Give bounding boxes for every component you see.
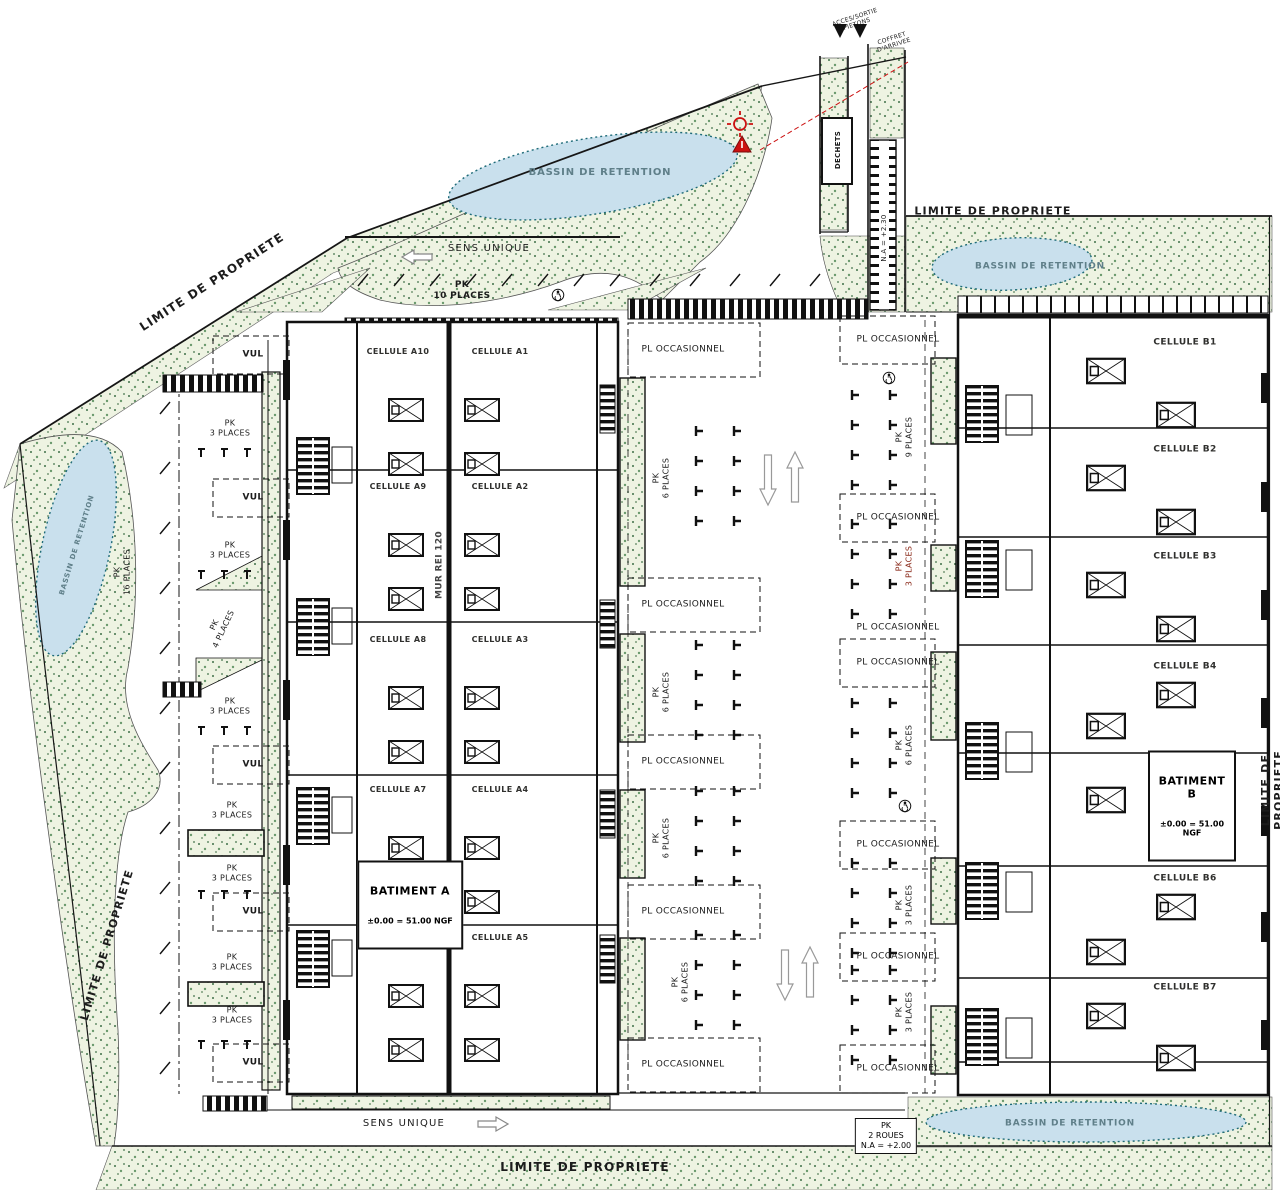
pl-occasionnel: PL OCCASIONNEL: [857, 952, 940, 963]
batiment-a-title-box: BATIMENT A ±0.00 = 51.00 NGF: [357, 861, 463, 950]
bassin-top-left-label: BASSIN DE RETENTION: [529, 167, 672, 179]
batiment-b-level: ±0.00 = 51.00 NGF: [1158, 820, 1226, 838]
batiment-b-structure: [958, 315, 1268, 1095]
mur-rei-label: MUR REI 120: [435, 531, 446, 599]
pl-occasionnel: PL OCCASIONNEL: [857, 1064, 940, 1075]
pk-2-roues-box: PK 2 ROUES N.A = +2.00: [855, 1118, 917, 1154]
pk-3-places: PK 3 PLACES: [210, 696, 251, 715]
cellule-a7: CELLULE A7: [370, 785, 427, 795]
cellule-a3: CELLULE A3: [472, 635, 529, 645]
pk-16-places: PK 16 PLACES: [112, 549, 131, 595]
cellule-b7: CELLULE B7: [1153, 983, 1216, 994]
pl-occasionnel: PL OCCASIONNEL: [642, 1060, 725, 1071]
handicap-icon: [552, 289, 564, 301]
pk-6-places: PK 6 PLACES: [651, 672, 670, 713]
cellule-a4: CELLULE A4: [472, 785, 529, 795]
pl-occasionnel: PL OCCASIONNEL: [642, 907, 725, 918]
cellule-a9: CELLULE A9: [370, 482, 427, 492]
batiment-b-title-box: BATIMENT B ±0.00 = 51.00 NGF: [1148, 751, 1236, 862]
pk-3-places: PK 3 PLACES: [210, 540, 251, 559]
handicap-icon: [899, 800, 911, 812]
sens-unique-top: SENS UNIQUE: [448, 243, 530, 255]
pk-3-places: PK 3 PLACES: [212, 800, 253, 819]
cellule-b3: CELLULE B3: [1153, 552, 1216, 563]
arrow-right: [478, 1117, 508, 1131]
vul-zone: VUL: [243, 493, 264, 504]
sens-unique-bottom: SENS UNIQUE: [363, 1118, 445, 1130]
cellule-a8: CELLULE A8: [370, 635, 427, 645]
cellule-a5: CELLULE A5: [472, 933, 529, 943]
cellule-b4: CELLULE B4: [1153, 662, 1216, 673]
dechets-label: DECHETS: [834, 131, 842, 169]
batiment-a-structure: [283, 322, 618, 1094]
cellule-a2: CELLULE A2: [472, 482, 529, 492]
cellule-a10: CELLULE A10: [367, 347, 430, 357]
pl-occasionnel: PL OCCASIONNEL: [857, 658, 940, 669]
pl-occasionnel: PL OCCASIONNEL: [642, 757, 725, 768]
vul-zone: VUL: [243, 1058, 264, 1069]
cellule-b6: CELLULE B6: [1153, 874, 1216, 885]
na-230-label: N.A = +2.30: [880, 214, 888, 261]
batiment-a-level: ±0.00 = 51.00 NGF: [367, 917, 453, 926]
pk-3-places: PK 3 PLACES: [212, 863, 253, 882]
bassin-bottom-right-label: BASSIN DE RETENTION: [1005, 1119, 1135, 1130]
limite-propriete-bottom: LIMITE DE PROPRIETE: [500, 1160, 670, 1174]
cellule-b2: CELLULE B2: [1153, 445, 1216, 456]
limite-propriete-right: LIMITE DE PROPRIETE: [1259, 750, 1280, 830]
bassin-top-right-label: BASSIN DE RETENTION: [975, 262, 1105, 273]
batiment-a-name: BATIMENT A: [367, 885, 453, 898]
green-band-bottom: [96, 1146, 1272, 1190]
pl-occasionnel: PL OCCASIONNEL: [857, 840, 940, 851]
limite-propriete-top-right: LIMITE DE PROPRIETE: [914, 204, 1071, 217]
vul-zone: VUL: [243, 350, 264, 361]
pk-3-places: PK 3 PLACES: [210, 418, 251, 437]
pk-6-places: PK 6 PLACES: [670, 962, 689, 1003]
pk-6-places: PK 6 PLACES: [651, 818, 670, 859]
pl-occasionnel: PL OCCASIONNEL: [857, 513, 940, 524]
pk16-ticks: [160, 402, 170, 1074]
site-plan: LIMITE DE PROPRIETE LIMITE DE PROPRIETE …: [0, 0, 1280, 1190]
handicap-icon: [883, 372, 895, 384]
pk-6-places: PK 6 PLACES: [651, 458, 670, 499]
green-strip-under-a: [292, 1096, 610, 1109]
pk-3-places: PK 3 PLACES: [212, 952, 253, 971]
cellule-a1: CELLULE A1: [472, 347, 529, 357]
cellule-b1: CELLULE B1: [1153, 338, 1216, 349]
pk-3-places: PK 3 PLACES: [894, 992, 913, 1033]
batiment-b-name: BATIMENT B: [1158, 775, 1226, 801]
vul-zone: VUL: [243, 760, 264, 771]
pl-occasionnel: PL OCCASIONNEL: [642, 345, 725, 356]
pk-9-places: PK 9 PLACES: [894, 417, 913, 458]
pl-occasionnel: PL OCCASIONNEL: [642, 600, 725, 611]
pk-10-places-label: PK 10 PLACES: [434, 280, 491, 302]
pk-6-places: PK 6 PLACES: [894, 725, 913, 766]
pk-3-places: PK 3 PLACES: [212, 1005, 253, 1024]
vul-zone: VUL: [243, 907, 264, 918]
pk-3-places: PK 3 PLACES: [894, 885, 913, 926]
pl-occasionnel: PL OCCASIONNEL: [857, 335, 940, 346]
pk-3-places: PK 3 PLACES: [894, 546, 913, 587]
pl-occasionnel: PL OCCASIONNEL: [857, 623, 940, 634]
